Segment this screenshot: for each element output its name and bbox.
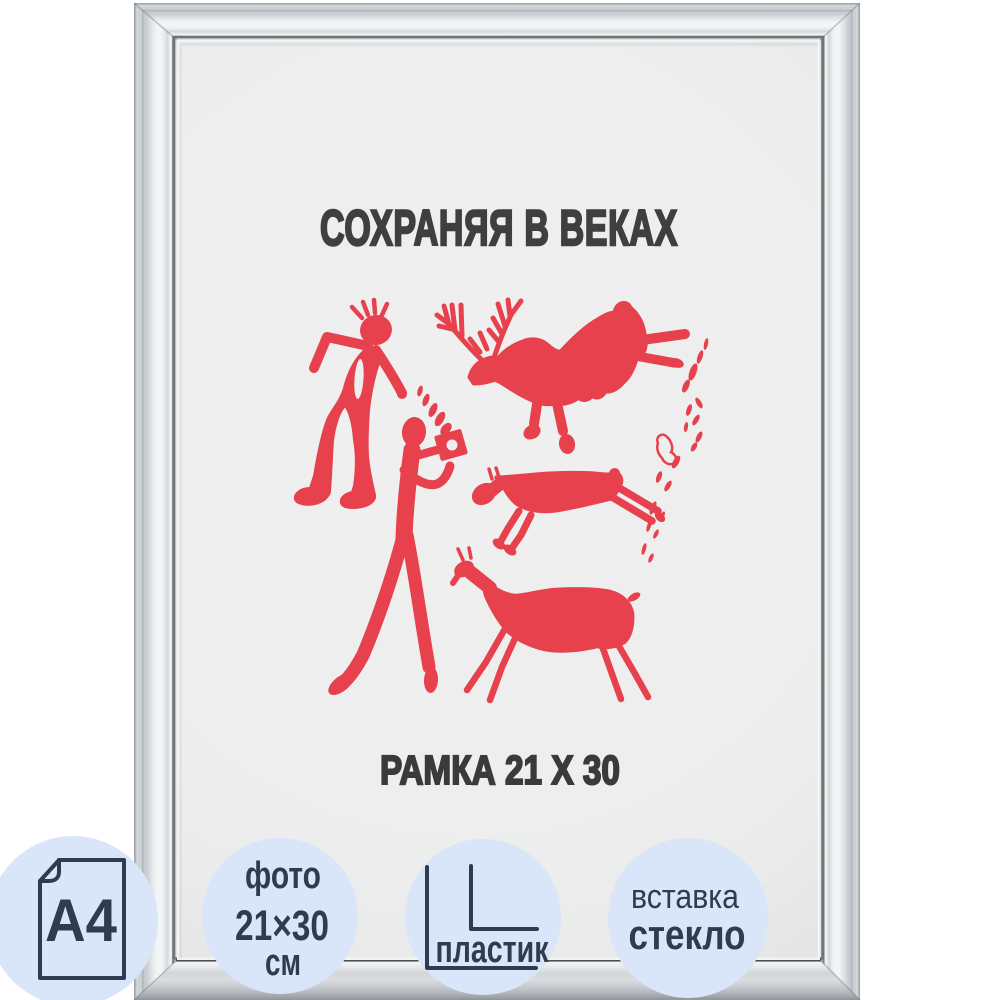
svg-text:СОХРАНЯЯ В ВЕКАХ: СОХРАНЯЯ В ВЕКАХ: [320, 200, 678, 256]
svg-text:см: см: [265, 942, 301, 984]
svg-text:A4: A4: [45, 887, 118, 954]
svg-text:стекло: стекло: [629, 911, 746, 958]
svg-text:РАМКА 21 X 30: РАМКА 21 X 30: [380, 747, 620, 793]
svg-text:пластик: пластик: [436, 929, 550, 971]
svg-text:фото: фото: [245, 855, 321, 897]
